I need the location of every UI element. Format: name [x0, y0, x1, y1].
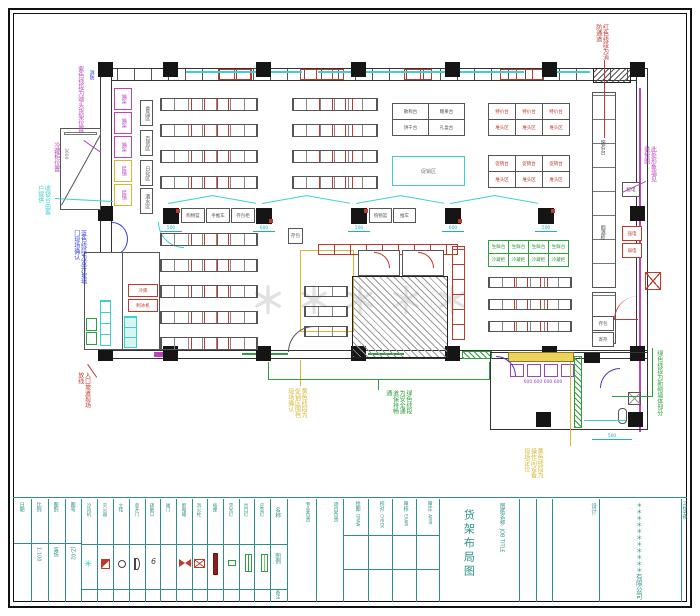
dept-columns: 专业负责 项目负责 — [288, 499, 344, 602]
gondola-shelf-row — [160, 98, 258, 111]
fresh-table: 生鲜台 — [528, 240, 549, 254]
locker-box: 存包 — [592, 316, 614, 331]
promo-table-red: 特价台 — [488, 103, 516, 120]
double-door-arc — [112, 222, 128, 239]
green-box — [86, 318, 97, 331]
legend-vline — [192, 499, 193, 602]
annotation-green-center: 绿色线段为安全通道保持畅通 — [384, 390, 411, 416]
fresh-table: 冷藏柜 — [548, 253, 569, 267]
fresh-table: 生鲜台 — [488, 240, 509, 254]
top-right-hatched-area — [593, 68, 631, 83]
register-mark — [364, 209, 368, 213]
annotation-magenta-left: 紫色线段为端头货架位置 — [76, 66, 83, 138]
sig-header: 审核: EXAM — [402, 501, 408, 526]
sig-vline — [368, 499, 369, 602]
legend-vline — [129, 499, 130, 602]
gondola-shelf-row — [292, 176, 378, 189]
promo-table: 饼干台 — [392, 119, 429, 136]
gondola-shelf-row — [160, 150, 258, 163]
end-shelf: 端架 — [114, 112, 132, 134]
legend-symbol-socket — [228, 560, 236, 566]
sig-hline — [344, 535, 440, 536]
gondola-shelf-row — [160, 285, 258, 298]
green-box — [86, 332, 97, 345]
gondola-shelf-row — [292, 150, 378, 163]
short-shelf-row — [304, 306, 348, 317]
annotation-cyan-left: 收银台由客户提供 — [36, 185, 49, 217]
column — [630, 62, 645, 77]
annotation-green-annex: 绿色线段为新砌墙体部分 — [655, 350, 662, 436]
annex-dark-equipment — [584, 353, 600, 363]
cyan-leader — [306, 195, 350, 204]
end-shelf-yellow: 促销 — [114, 160, 132, 182]
floor-plan: 消防 3600 端架 端架 端架 促销 促销 食品区 百货区 日化区 酒水区 散… — [0, 0, 700, 496]
legend-symbol-extinguisher — [101, 559, 110, 569]
register-mark — [458, 219, 462, 223]
promo-area: 促销区 — [392, 156, 465, 186]
register-mark — [176, 209, 180, 213]
legend-symbol-exit-sign: 6 — [151, 557, 156, 566]
fresh-table: 生鲜台 — [548, 240, 569, 254]
cyan-leader — [262, 195, 306, 204]
legend-header-vline — [270, 499, 271, 602]
column — [256, 62, 271, 77]
annex-green-hatch-wall — [574, 356, 582, 428]
info-table: 日期 比例 图别 图号 1:100 装饰 JZ-02 — [14, 499, 82, 602]
company-cell: ＊＊＊＊＊＊＊＊＊＊＊有限公司 — [600, 499, 682, 602]
annotation-magenta-right: 此处形象墙见装修图 — [642, 146, 655, 186]
legend-vline — [239, 499, 240, 602]
power-box: 强电 — [622, 226, 642, 241]
promo-table-red: 特价台 — [542, 103, 570, 120]
fresh-table: 冷藏柜 — [528, 253, 549, 267]
legend-item-name: 疏散口 — [149, 503, 154, 517]
info-header: 比例 — [35, 502, 41, 512]
gondola-shelf-row — [160, 233, 258, 246]
sig-header: 绘图: DRAW — [354, 501, 360, 526]
column — [630, 206, 645, 221]
promo-table: 礼盒台 — [428, 119, 465, 136]
entrance-door-arc — [288, 326, 314, 352]
info-value: 1:100 — [35, 547, 41, 561]
legend-row-header: 备注 — [275, 590, 280, 599]
annex-fixture-dims: 600 600 600 600 — [508, 380, 578, 385]
legend-symbol-fluorescent — [245, 554, 252, 572]
narrow-vline — [536, 499, 537, 602]
right-wall-door-arc — [614, 296, 638, 320]
info-header: 日期 — [18, 502, 24, 512]
legend-vline — [207, 499, 208, 602]
signature-columns: 绘图: DRAW 校对: CHECK 审核: EXAM 审定: APPR — [344, 499, 440, 602]
green-bracket-stem — [378, 380, 379, 390]
job-title-cell: 图纸名称: JOB TITLE 货架布局图 — [440, 499, 520, 602]
legend-symbol-exit-lamp — [261, 554, 268, 572]
checkout-label: 手推车 — [206, 208, 230, 223]
top-cyan-line — [318, 71, 524, 73]
promo-table: 糖果台 — [428, 103, 465, 120]
promo-table-red: 堆头区 — [488, 119, 516, 136]
legend-symbol-hydrant — [213, 553, 218, 575]
legend-row-header: 名称 — [274, 507, 280, 518]
legend-item-name: 阀门 — [165, 503, 170, 512]
aisle-sign: 日化区 — [140, 160, 153, 186]
cold-room-label: 制冰机 — [128, 299, 158, 312]
column — [163, 62, 178, 77]
annotation-red-top: 红色线段为消防通道 — [594, 24, 607, 60]
legend-vline — [223, 499, 224, 602]
water-heater — [618, 408, 627, 424]
info-header: 图别 — [52, 502, 58, 512]
room-divider — [122, 252, 123, 350]
teal-cells — [124, 316, 137, 348]
top-cyan-line — [556, 71, 590, 73]
promo-table-red: 促销台 — [515, 155, 543, 172]
info-value: 装饰 — [52, 547, 58, 557]
legend-vline — [97, 499, 98, 602]
legend-vline — [176, 499, 177, 602]
title-block: 日期 比例 图别 图号 1:100 装饰 JZ-02 名称 图例 备注 — [13, 497, 687, 602]
legend-item-name: 出口灯 — [243, 503, 248, 517]
legend-symbol-column — [118, 560, 126, 568]
gondola-shelf-row — [488, 299, 572, 310]
register-mark — [269, 219, 273, 223]
cyan-leader — [400, 195, 444, 204]
annex-cyan-line — [584, 420, 626, 421]
top-wall-shelving — [100, 68, 648, 81]
design-label: 设计: — [590, 503, 596, 516]
sig-vline — [392, 499, 393, 602]
gondola-shelf-row — [160, 311, 258, 324]
legend-item-name: 消火栓 — [196, 503, 201, 517]
job-title-label: 图纸名称: JOB TITLE — [498, 503, 505, 553]
promo-table-red: 促销台 — [542, 155, 570, 172]
red-counter-side — [452, 246, 465, 340]
vestibule-dim: 3600 — [63, 148, 68, 159]
column — [256, 346, 271, 361]
dept-header: 项目负责 — [332, 502, 338, 522]
annotation-red-bottom-left: 入口坡道现场放线 — [76, 372, 89, 408]
yellow-annex-leader — [570, 362, 571, 446]
legend-row-header: 图例 — [274, 553, 280, 564]
gondola-shelf-row — [488, 321, 572, 332]
project-label: 工程名称: — [682, 501, 687, 521]
hatched-platform — [352, 276, 448, 358]
sig-hline — [344, 569, 440, 570]
hydrant-label: 消防 — [88, 70, 94, 80]
sig-vline — [416, 499, 417, 602]
green-annex-leader-h — [612, 396, 652, 397]
info-value — [18, 547, 24, 552]
legend-item-name: 单开门 — [134, 503, 139, 517]
aisle-sign: 百货区 — [140, 130, 153, 156]
fresh-table: 生鲜台 — [508, 240, 529, 254]
legend-symbol-fan: ✳ — [84, 559, 92, 570]
legend-item-name: 插座 — [212, 503, 217, 512]
gondola-shelf-row — [292, 98, 378, 111]
annex-fixture — [561, 364, 574, 377]
green-annex-leader-v — [652, 348, 653, 397]
legend-symbol-valve-right — [185, 559, 191, 567]
cyan-leader — [494, 195, 538, 204]
bottom-wall-green-hatch — [462, 351, 492, 359]
legend-table: 名称 图例 备注 冷风机 灭火器 立柱 单开门 疏散口 阀门 配电箱 消火栓 插… — [82, 499, 288, 602]
legend-item-name: 荧光灯 — [228, 503, 233, 517]
company-name: ＊＊＊＊＊＊＊＊＊＊＊有限公司 — [634, 502, 641, 600]
annex-fixture — [544, 364, 558, 377]
cyan-leader — [212, 195, 256, 204]
legend-vline — [160, 499, 161, 602]
legend-item-name: 冷风机 — [86, 503, 91, 517]
sig-header: 审定: APPR — [426, 501, 432, 525]
annotation-yellow-annex: 黄色线段为操作间设备现场定位 — [522, 448, 542, 478]
cad-drawing-sheet: ＊＊＊＊＊ — [0, 0, 700, 616]
legend-vline — [254, 499, 255, 602]
top-cyan-line — [186, 71, 302, 73]
checkout-dim: 500 — [348, 226, 370, 232]
checkout-label: 存包 — [288, 228, 303, 244]
cold-room-label: 冷库 — [128, 284, 158, 297]
red-top-leader — [604, 60, 605, 138]
gondola-shelf-row — [160, 337, 258, 350]
gondola-shelf-row — [160, 176, 258, 189]
promo-table-red: 堆头区 — [542, 119, 570, 136]
sig-header: 校对: CHECK — [378, 501, 384, 528]
annotation-yellow-center: 黄色线段为促销区围挡现场确认 — [286, 388, 306, 418]
promo-table: 散称台 — [392, 103, 429, 120]
dept-vline — [316, 499, 317, 602]
info-header: 图号 — [69, 502, 75, 512]
aisle-sign: 食品区 — [140, 100, 153, 126]
end-shelf: 端架 — [114, 88, 132, 110]
power-box: 弱电 — [622, 243, 642, 258]
column — [445, 62, 460, 77]
gondola-shelf-row — [160, 124, 258, 137]
design-cell: 设计: — [552, 499, 600, 602]
promo-table-red: 特价台 — [515, 103, 543, 120]
drawing-title: 货架布局图 — [462, 509, 474, 579]
info-value: JZ-02 — [69, 547, 75, 560]
gondola-shelf-row — [160, 259, 258, 272]
column — [351, 62, 366, 77]
project-column: 工程名称: — [682, 499, 687, 602]
legend-vline — [113, 499, 114, 602]
checkout-dim: 500 — [535, 226, 557, 232]
promo-table-red: 堆头区 — [542, 171, 570, 188]
cyan-leader — [450, 195, 494, 204]
aisle-sign: 酒水区 — [140, 188, 153, 214]
legend-item-name: 配电箱 — [181, 503, 186, 517]
register-mark — [551, 209, 555, 213]
legend-item-name: 灭火器 — [102, 503, 107, 517]
checkout-dim: 600 — [253, 226, 275, 232]
gondola-shelf-row — [292, 124, 378, 137]
info-vline — [65, 499, 66, 602]
legend-item-name: 应急灯 — [259, 503, 264, 517]
legend-symbol-door — [134, 558, 140, 570]
gondola-shelf-row — [488, 277, 572, 288]
checkout-label: 购物篮 — [369, 208, 392, 223]
info-vline — [31, 499, 32, 602]
checkout-label: 推车 — [393, 208, 416, 223]
checkout-dim: 600 — [442, 226, 464, 232]
cyan-leader — [356, 195, 400, 204]
legend-symbol-panel — [194, 559, 205, 568]
annex-dim: 500 — [592, 434, 632, 440]
end-shelf: 端架 — [114, 136, 132, 158]
info-vline — [48, 499, 49, 602]
locker-box: 寄存 — [592, 332, 614, 347]
legend-vline — [145, 499, 146, 602]
green-bracket — [268, 362, 490, 380]
end-shelf-yellow: 促销 — [114, 184, 132, 206]
fresh-table: 冷藏柜 — [488, 253, 509, 267]
annotation-blue-door: 蓝色线段为双开玻璃门现场确认 — [72, 230, 85, 288]
short-shelf-row — [304, 286, 348, 297]
promo-table-red: 堆头区 — [488, 171, 516, 188]
electrical-x-box — [645, 272, 661, 290]
fresh-table: 冷藏柜 — [508, 253, 529, 267]
annex-fixture — [527, 364, 541, 377]
washbasin — [628, 392, 641, 405]
cyan-shelf-strip — [100, 300, 111, 346]
right-counter-label: 烟酒柜 — [599, 225, 605, 240]
promo-table-red: 促销台 — [488, 155, 516, 172]
annotation-magenta-small: 冷藏柜位置 — [52, 142, 59, 178]
dept-header: 专业负责 — [304, 502, 310, 522]
column — [542, 62, 557, 77]
legend-item-name: 立柱 — [118, 503, 123, 512]
promo-table-red: 堆头区 — [515, 119, 543, 136]
cyan-leader — [168, 195, 212, 204]
annex-yellow-counter — [508, 352, 574, 362]
column — [98, 62, 113, 77]
promo-table-red: 堆头区 — [515, 171, 543, 188]
checkout-label: 存包柜 — [231, 208, 255, 223]
right-counter-label: 服务台 — [599, 140, 605, 155]
checkout-label: 购物篮 — [181, 208, 205, 223]
